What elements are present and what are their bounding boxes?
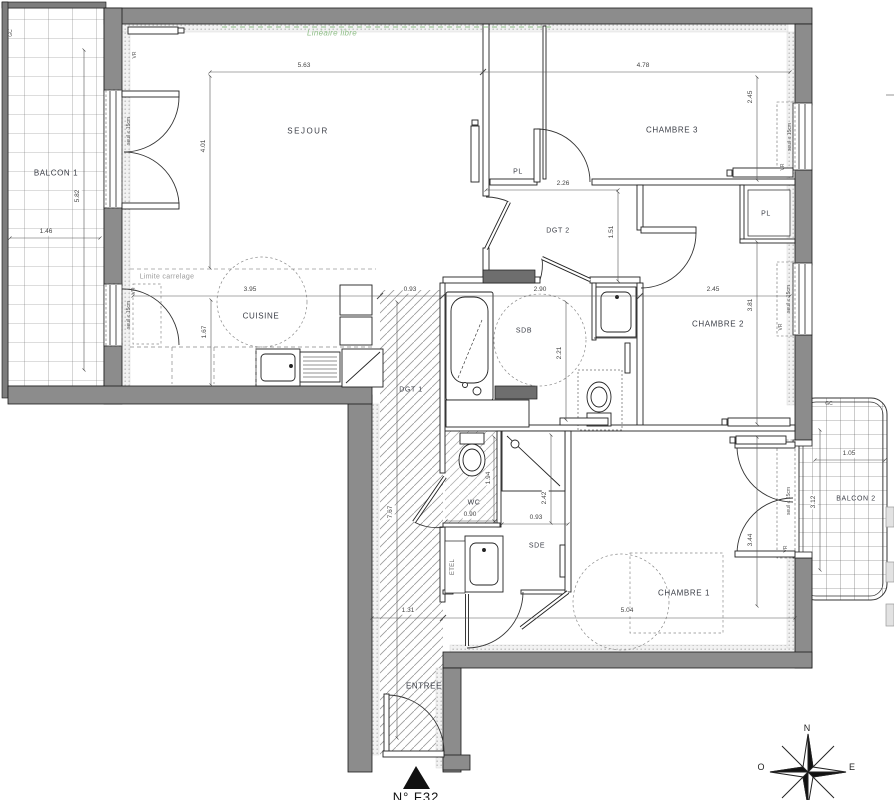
dim-sde-height: 2.42 <box>542 491 549 506</box>
dim-cuisine-height: 1.67 <box>202 325 209 340</box>
room-label-chambre2: CHAMBRE 2 <box>692 320 744 329</box>
dim-wc-height: 1.94 <box>486 471 493 486</box>
sdb-washbasin <box>596 287 636 337</box>
annotation-vr-cuisine: VR <box>131 288 137 295</box>
wc-toilet <box>459 433 485 476</box>
room-label-chambre1: CHAMBRE 1 <box>658 589 710 598</box>
entrance-triangle <box>403 766 430 789</box>
chambre2-door-arc <box>641 233 696 288</box>
bathtub <box>446 292 493 400</box>
room-label-sde: SDE <box>529 543 545 550</box>
dim-chambre2-height: 3.81 <box>748 298 755 313</box>
room-label-balcon2: BALCON 2 <box>836 496 875 503</box>
dim-chambre3-height: 2.45 <box>748 90 755 105</box>
annotation-vr-balcon2: VR <box>783 546 789 553</box>
dim-chambre2-width: 2.45 <box>706 287 721 294</box>
room-label-pl-sejour: PL <box>513 169 523 176</box>
dim-dgt1-length: 7.67 <box>388 505 395 520</box>
dim-sdb-height: 2.21 <box>557 346 564 361</box>
annotation-vr-chambre2: VR <box>778 324 784 331</box>
sdb-vanity <box>446 400 529 427</box>
annotation-lineaire-libre: Linéaire libre <box>307 29 357 38</box>
dim-balcon1-width: 1.46 <box>39 229 54 236</box>
shower <box>502 431 565 577</box>
dim-sde-width: 0.93 <box>529 515 544 522</box>
annotation-limite-carrelage: Limite carrelage <box>140 274 195 281</box>
kitchen-corner-unit <box>342 349 383 387</box>
annotation-vr-chambre3: VR <box>780 164 786 171</box>
room-label-sdb: SDB <box>516 328 532 335</box>
annotation-seuil-chambre3: seuil ≤ 15cm <box>787 123 793 151</box>
sejour-balcony-door-arc-top <box>124 97 179 152</box>
dim-sejour-width: 5.63 <box>297 63 312 70</box>
dim-dgt2-width: 2.26 <box>556 181 571 188</box>
dim-chambre1-width: 5.04 <box>620 608 635 615</box>
sejour-dgt2-door-swing <box>486 197 509 202</box>
room-label-dgt2: DGT 2 <box>546 228 570 235</box>
sde-washbasin <box>465 536 503 592</box>
floor-plan: BALCON 1 SEJOUR CHAMBRE 3 PL DGT 2 CUISI… <box>0 0 894 800</box>
balcon2-door-arc-top <box>737 448 793 502</box>
balcony-1-tiles <box>2 2 106 398</box>
dim-entree-width: 1.31 <box>401 608 416 615</box>
annotation-seuil-balcon2: seuil ≤ 15cm <box>786 487 792 515</box>
floor-plan-geometry <box>0 0 894 800</box>
annotation-seuil-chambre2: seuil ≤ 15cm <box>786 285 792 313</box>
room-label-sejour: SEJOUR <box>287 127 328 136</box>
dim-chambre1-height: 3.44 <box>748 533 755 548</box>
kitchen-tall-units <box>340 285 372 345</box>
unit-number-label: N° F32 <box>393 790 440 800</box>
dim-chambre3-width: 4.78 <box>636 63 651 70</box>
dim-dgt1-width: 0.93 <box>403 287 418 294</box>
dim-dgt2-height: 1.51 <box>609 225 616 240</box>
dim-sdb-width: 2.90 <box>533 287 548 294</box>
dim-balcon1-height: 5.82 <box>75 189 82 204</box>
annotation-seuil-cuisine: seuil ≤ 15cm <box>126 301 132 329</box>
room-label-balcon1: BALCON 1 <box>34 169 78 178</box>
sejour-balcony-door-arc-bottom <box>124 152 179 203</box>
compass-north-label: N <box>804 723 811 733</box>
room-label-cuisine: CUISINE <box>243 312 280 321</box>
compass-rose <box>770 734 846 800</box>
room-label-wc: WC <box>468 500 481 507</box>
dim-sejour-height: 4.01 <box>201 139 208 154</box>
annotation-gc-balcon1: GC <box>8 29 14 37</box>
label-etel: ETEL <box>450 559 456 575</box>
room-label-entree: ENTREE <box>406 682 442 691</box>
annotation-vr-sejour: VR <box>132 52 138 59</box>
compass-west-label: O <box>757 762 764 772</box>
dim-balcon2-width: 1.05 <box>842 451 857 458</box>
annotation-seuil-sejour: seuil ≤ 15cm <box>126 117 132 145</box>
dim-wc-width: 0.90 <box>463 512 478 519</box>
dim-balcon2-height: 3.12 <box>811 495 818 510</box>
compass-east-label: E <box>849 762 855 772</box>
room-label-chambre3: CHAMBRE 3 <box>646 126 698 135</box>
room-label-dgt1: DGT 1 <box>399 387 423 394</box>
annotation-gc-balcon2: GC <box>825 401 833 407</box>
room-label-pl-chambre3: PL <box>761 211 771 218</box>
dim-cuisine-width: 3.95 <box>243 287 258 294</box>
sde-door-arc <box>467 592 523 648</box>
kitchen-sink <box>256 349 340 386</box>
